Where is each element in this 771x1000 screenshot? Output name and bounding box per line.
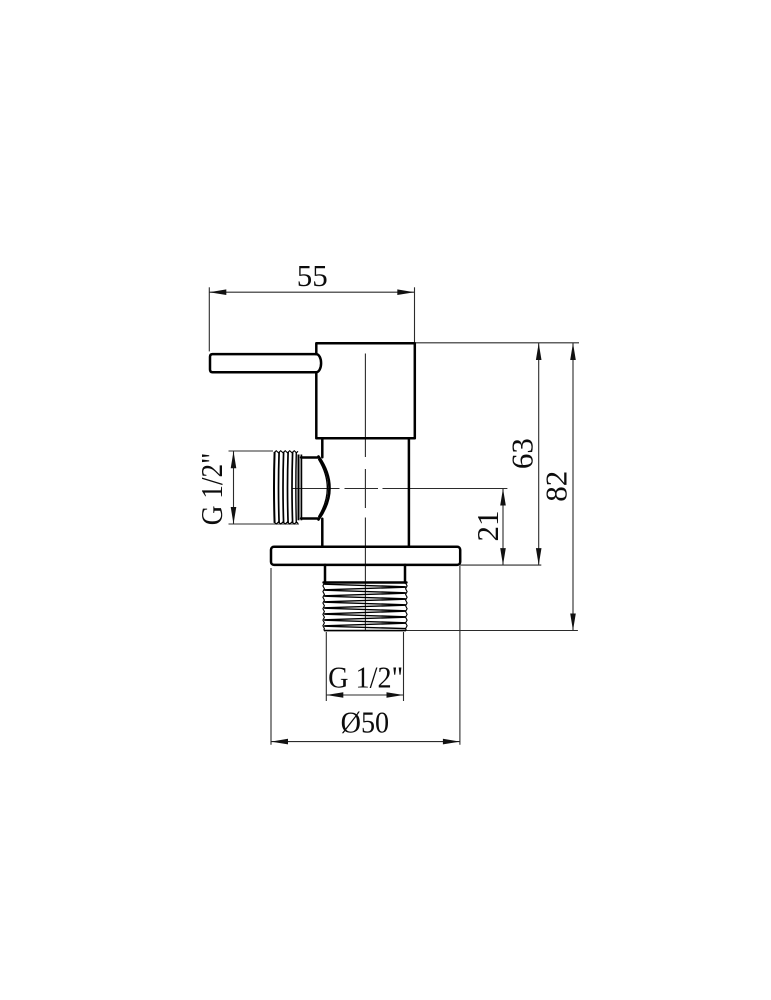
svg-text:55: 55 <box>297 258 328 293</box>
svg-text:63: 63 <box>505 438 540 469</box>
svg-text:Ø50: Ø50 <box>341 705 390 740</box>
svg-text:G 1/2": G 1/2" <box>194 453 229 526</box>
svg-text:82: 82 <box>539 471 574 502</box>
svg-text:G 1/2": G 1/2" <box>328 660 403 695</box>
svg-text:21: 21 <box>470 511 505 542</box>
